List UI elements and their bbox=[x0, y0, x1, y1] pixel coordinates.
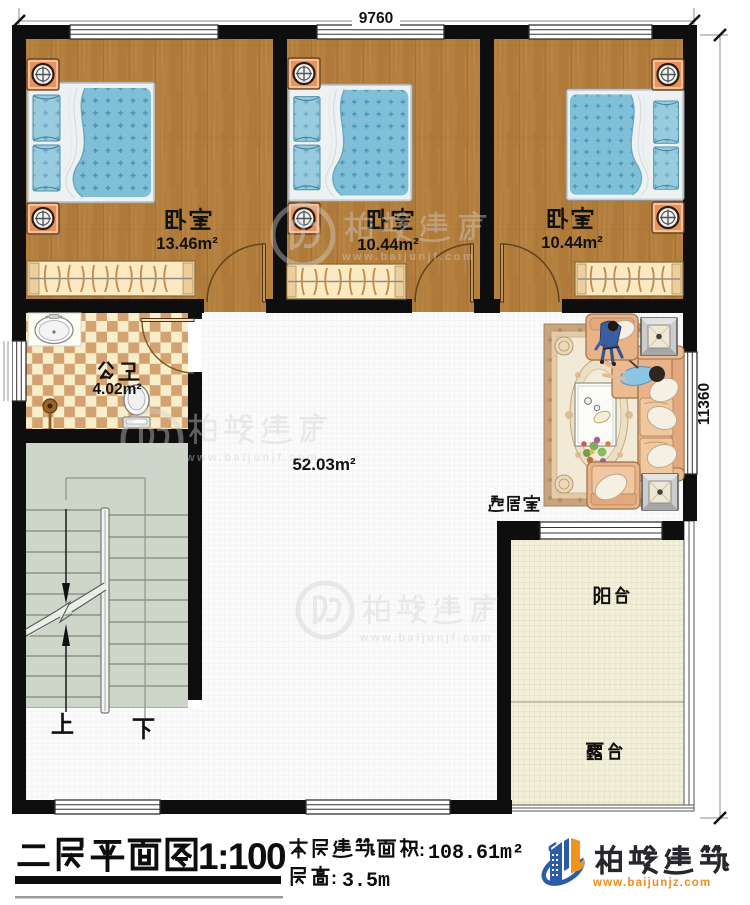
svg-text:www.baijunjz.com: www.baijunjz.com bbox=[592, 877, 711, 889]
svg-text:www.baijunjf.com: www.baijunjf.com bbox=[341, 251, 475, 263]
svg-text:www.baijunjf.com: www.baijunjf.com bbox=[185, 452, 319, 464]
svg-text:10.44m²: 10.44m² bbox=[541, 234, 603, 252]
svg-text:www.baijunjf.com: www.baijunjf.com bbox=[359, 632, 493, 644]
svg-text::: : bbox=[331, 868, 337, 888]
svg-text:1:100: 1:100 bbox=[198, 836, 286, 877]
svg-text:11360: 11360 bbox=[696, 383, 713, 425]
svg-text::: : bbox=[419, 840, 425, 860]
svg-text:108.61m²: 108.61m² bbox=[428, 842, 524, 865]
svg-text:3.5m: 3.5m bbox=[342, 870, 390, 893]
svg-text:4.02m²: 4.02m² bbox=[92, 381, 141, 398]
svg-text:9760: 9760 bbox=[359, 10, 393, 27]
svg-text:13.46m²: 13.46m² bbox=[156, 235, 218, 253]
